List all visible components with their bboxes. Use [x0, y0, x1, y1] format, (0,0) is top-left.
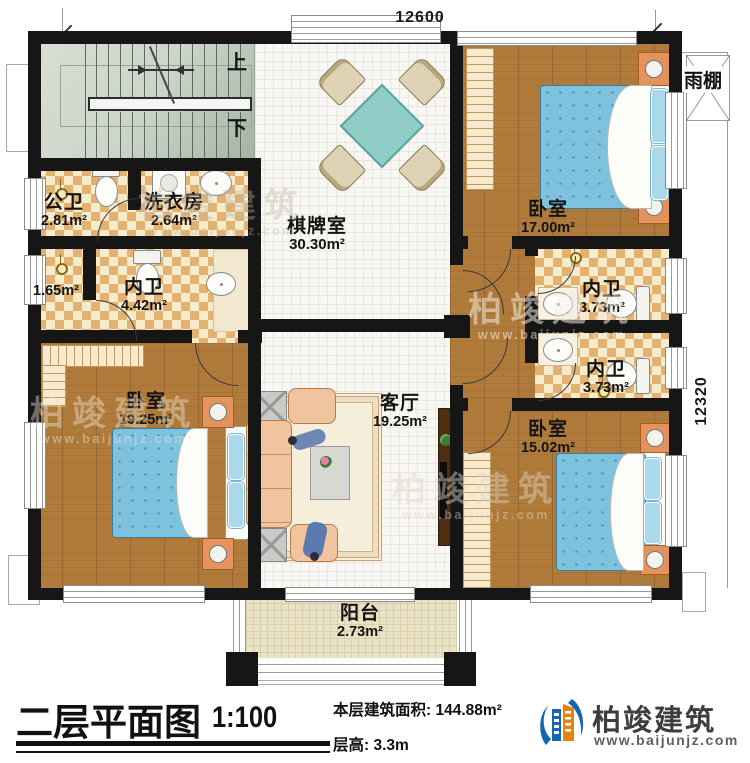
wall: [28, 158, 261, 171]
wall: [463, 398, 468, 411]
wall: [525, 296, 538, 363]
canopy-label: 雨棚: [684, 66, 722, 93]
balcony-column: [444, 652, 476, 686]
bed-duvet: [176, 428, 208, 538]
toilet-tank: [133, 250, 161, 264]
drain-icon: [220, 283, 223, 286]
nightstand: [640, 545, 670, 575]
room-area: 1.65m²: [14, 283, 98, 299]
wardrobe: [463, 452, 491, 588]
brand-logo-icon: [536, 695, 588, 751]
lamp-icon: [646, 429, 664, 447]
room-area: 15.02m²: [498, 440, 598, 456]
room-label-public-bath: 公卫 2.81m²: [18, 192, 110, 230]
nightstand: [202, 396, 234, 428]
room-label-closet: 1.65m²: [14, 283, 98, 299]
bed-duvet: [610, 453, 644, 571]
pillow: [644, 502, 661, 544]
window: [665, 347, 687, 389]
title-underline: [16, 741, 330, 746]
room-name: 内卫: [556, 359, 656, 380]
person-head: [288, 436, 297, 445]
wall: [444, 315, 470, 338]
drain-icon: [557, 349, 560, 352]
room-area: 19.25m²: [350, 414, 450, 430]
pillow: [228, 482, 244, 528]
wall: [535, 320, 682, 333]
room-area: 30.30m²: [258, 237, 376, 254]
room-label-bedroom-se: 卧室 15.02m²: [498, 419, 598, 457]
wardrobe: [42, 345, 144, 367]
nightstand: [202, 538, 234, 570]
tv-screen: [440, 462, 447, 518]
pillow: [228, 434, 244, 480]
floorplan-sheet: 上 下: [0, 0, 750, 763]
stair-down-label: 下: [227, 112, 247, 141]
stair-treads-lower: [85, 112, 250, 158]
floor-height-label: 层高: 3.3m: [333, 733, 409, 755]
ac-platform: [682, 572, 706, 612]
room-name: 公卫: [18, 192, 110, 213]
title-underline-thin: [16, 751, 330, 753]
stair-arrow-right-icon: [138, 65, 147, 75]
balcony-column: [226, 652, 258, 686]
window: [530, 585, 652, 603]
room-name: 洗衣房: [126, 192, 222, 213]
dimension-right: 12320: [693, 356, 711, 446]
room-label-bedroom-sw: 卧室 19.25m²: [96, 391, 196, 429]
lamp-icon: [209, 403, 227, 421]
room-area: 3.73m²: [556, 380, 656, 396]
room-name: 卧室: [494, 199, 602, 220]
armchair: [288, 388, 336, 424]
room-area: 3.73m²: [552, 300, 652, 316]
room-name: 客厅: [350, 393, 450, 414]
nightstand: [640, 423, 670, 453]
washing-machine-door-icon: [160, 174, 178, 192]
room-name: 内卫: [96, 277, 192, 298]
title-block: 二层平面图 1:100 本层建筑面积: 144.88m² 层高: 3.3m 柏竣…: [0, 690, 750, 763]
room-area: 4.42m²: [96, 298, 192, 314]
lamp-icon: [209, 545, 227, 563]
room-name: 卧室: [96, 391, 196, 412]
floor-area-label: 本层建筑面积: 144.88m²: [333, 698, 502, 720]
brand-url: www.baijunjz.com: [594, 732, 739, 748]
wall: [450, 43, 463, 265]
room-label-ensuite-e2: 内卫 3.73m²: [556, 359, 656, 397]
person-head: [310, 552, 319, 561]
window: [665, 92, 687, 189]
room-area: 2.81m²: [18, 213, 110, 229]
bed-duvet: [607, 85, 652, 209]
brand-logo-svg: [536, 695, 588, 751]
coffee-table: [310, 446, 350, 500]
room-label-bedroom-ne: 卧室 17.00m²: [494, 199, 602, 237]
room-label-game-room: 棋牌室 30.30m²: [258, 216, 376, 254]
balcony-sliding-door: [285, 587, 415, 602]
room-label-ensuite-w: 内卫 4.42m²: [96, 277, 192, 315]
wardrobe: [42, 365, 66, 407]
window: [457, 31, 637, 46]
drain-icon: [215, 182, 218, 185]
window: [665, 455, 687, 547]
light-pull-icon: [56, 263, 68, 275]
wall: [525, 249, 538, 256]
sink: [206, 272, 236, 296]
drawing-scale: 1:100: [212, 701, 277, 735]
dimension-line: [682, 52, 728, 53]
window: [665, 258, 687, 314]
room-name: 卧室: [498, 419, 598, 440]
dimension-line: [727, 52, 728, 588]
balcony-railing-line: [240, 684, 470, 685]
wall: [255, 319, 444, 332]
room-name: 棋牌室: [258, 216, 376, 237]
stair-arrow-left-icon: [175, 65, 184, 75]
room-area: 19.25m²: [96, 412, 196, 428]
room-area: 2.64m²: [126, 213, 222, 229]
wall: [512, 236, 682, 249]
room-label-living-room: 客厅 19.25m²: [350, 393, 450, 431]
balcony-railing-line: [240, 680, 470, 681]
wall: [463, 236, 468, 249]
room-label-ensuite-e1: 内卫 3.73m²: [552, 279, 652, 317]
flower-vase: [320, 456, 332, 468]
stair-landing-edge: [85, 43, 86, 158]
wall: [28, 236, 261, 249]
wall: [450, 385, 463, 600]
window: [63, 585, 205, 603]
room-area: 17.00m²: [494, 220, 602, 236]
stair-room-boundary: [254, 43, 255, 158]
window: [24, 422, 46, 509]
wall: [28, 31, 41, 600]
pillow: [644, 458, 661, 500]
floorplan-drawing: 上 下: [0, 0, 750, 690]
stair-stringer: [88, 97, 252, 111]
stair-up-label: 上: [227, 46, 247, 75]
dimension-top: 12600: [375, 9, 465, 27]
room-label-laundry: 洗衣房 2.64m²: [126, 192, 222, 230]
room-area: 2.73m²: [312, 624, 408, 640]
room-name: 阳台: [312, 603, 408, 624]
nightstand: [638, 52, 670, 86]
wardrobe: [466, 48, 494, 190]
room-name: 内卫: [552, 279, 652, 300]
lamp-icon: [645, 60, 663, 78]
room-label-balcony: 阳台 2.73m²: [312, 603, 408, 641]
sheet-title: 二层平面图: [16, 692, 201, 746]
lamp-icon: [646, 551, 664, 569]
